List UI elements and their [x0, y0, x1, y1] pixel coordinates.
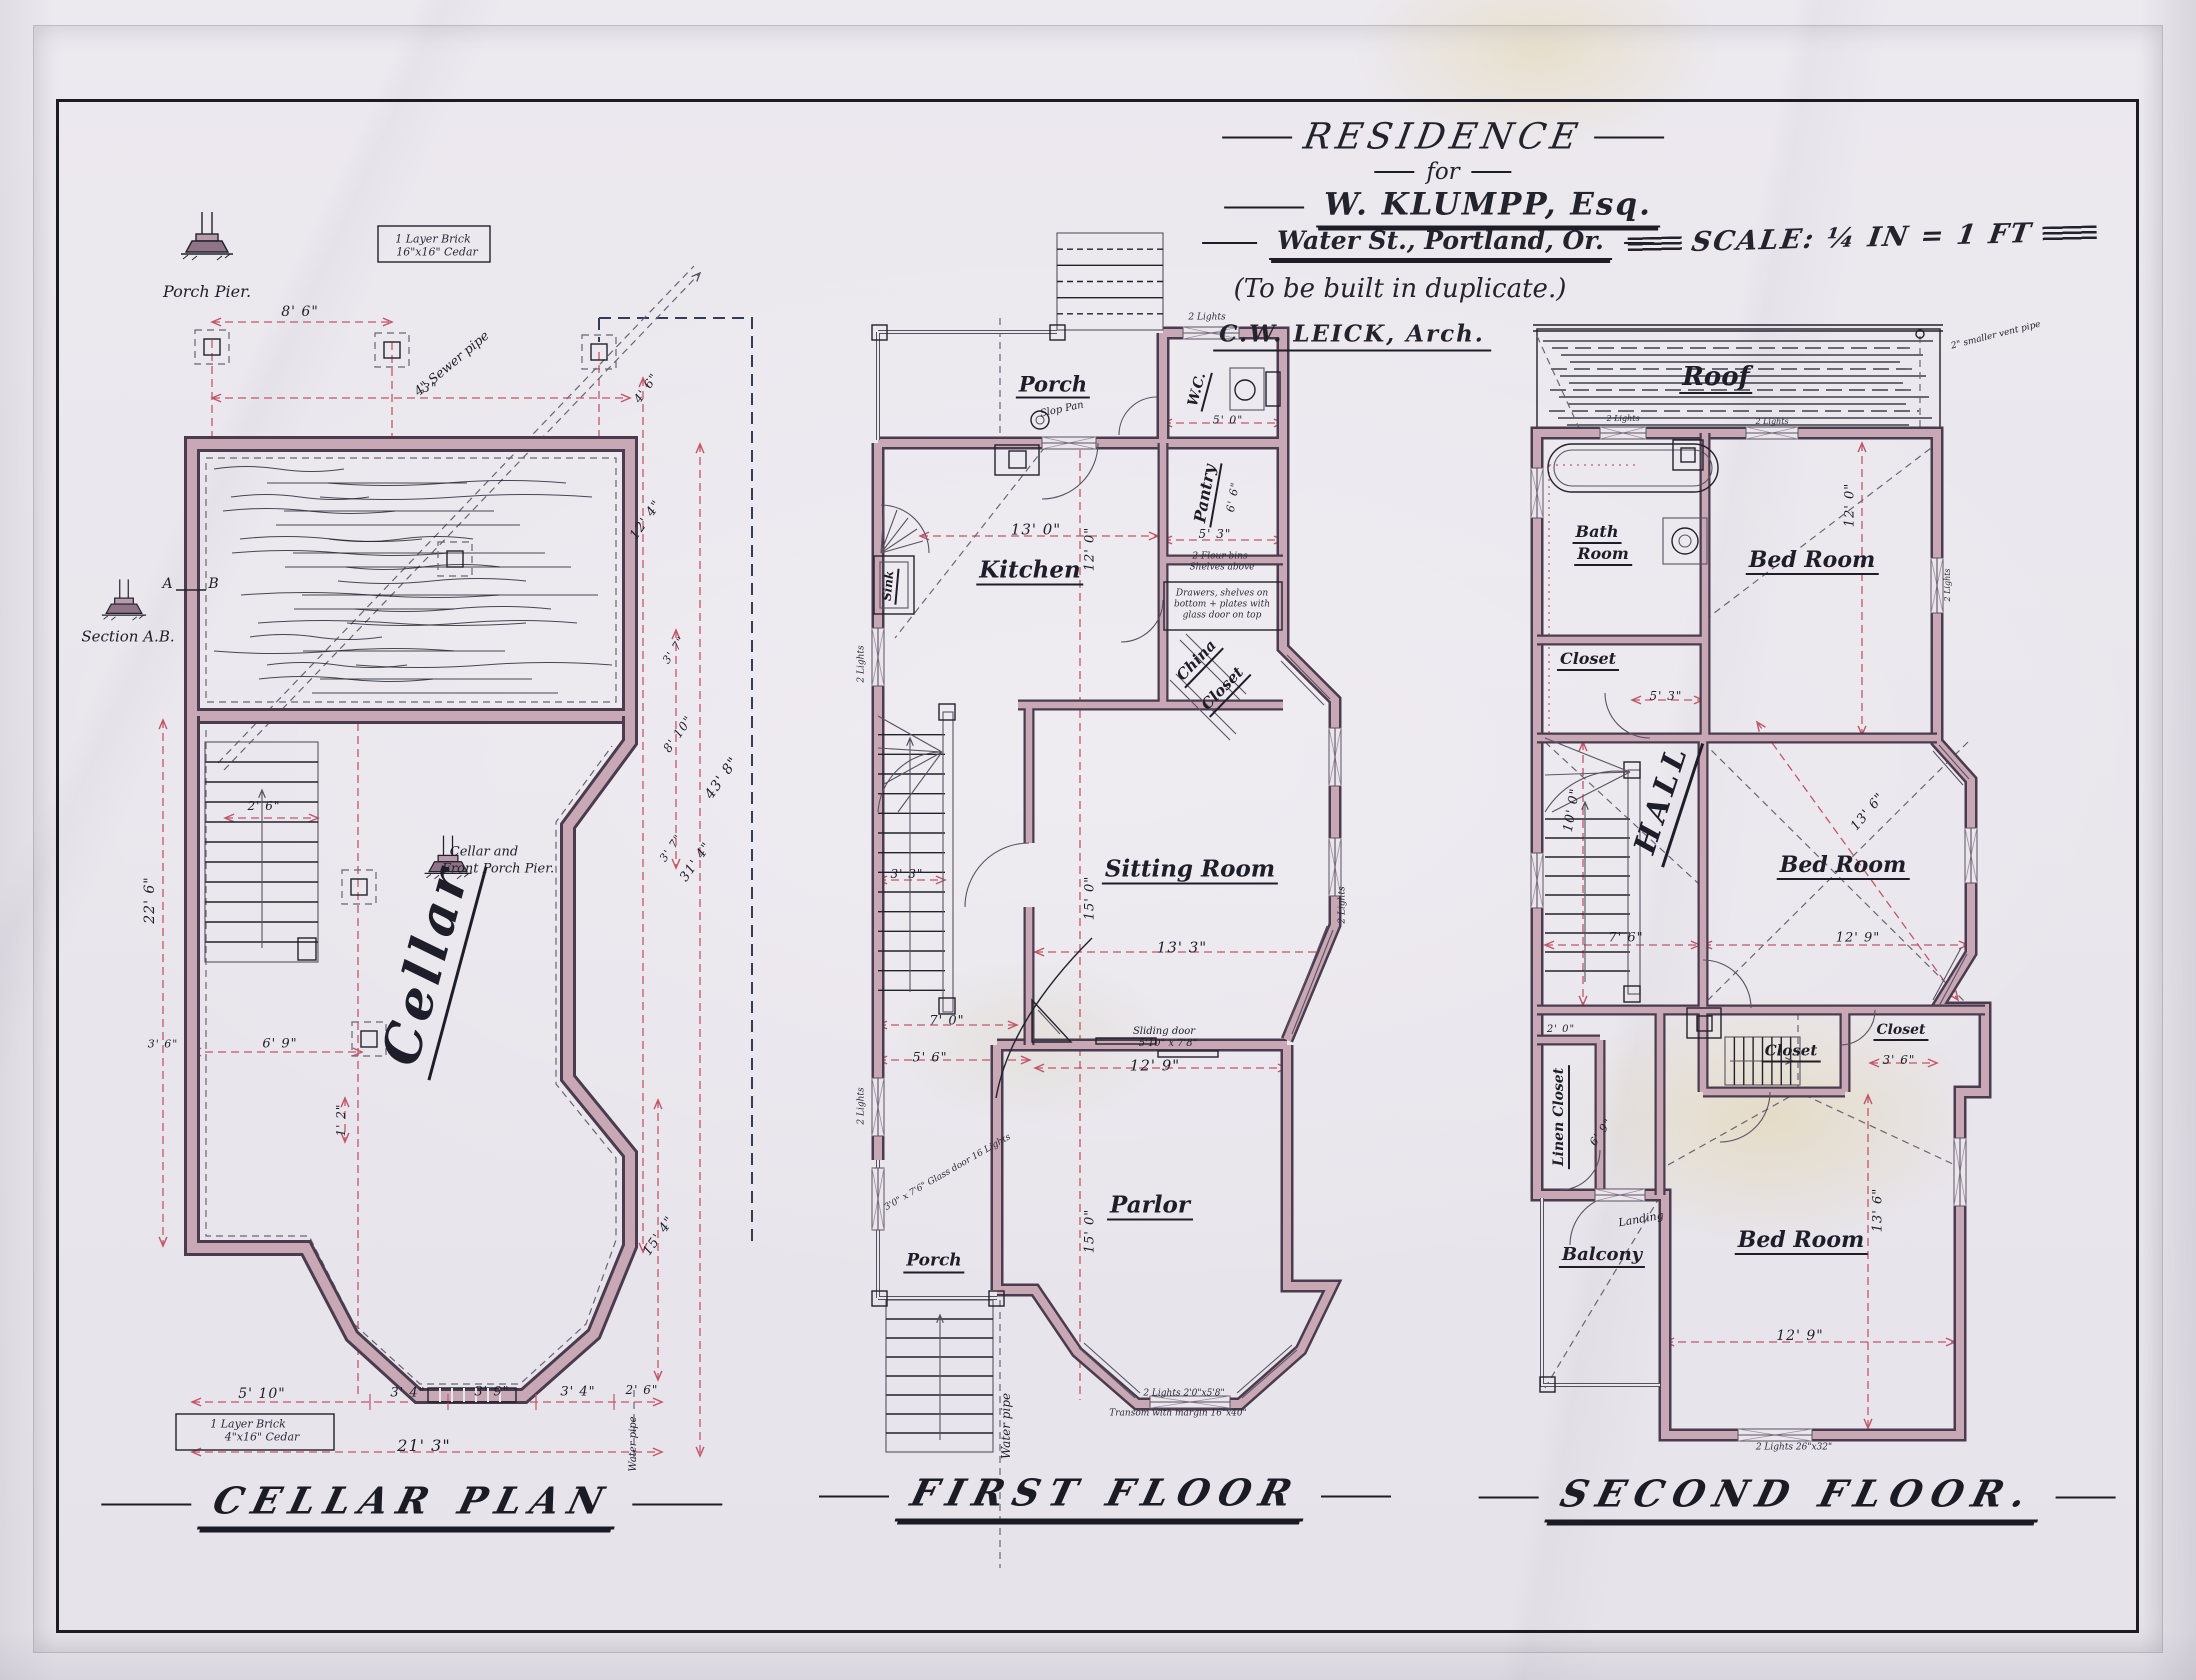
- water-pipe-note: Water pipe: [1000, 1393, 1012, 1459]
- client-line: W. KLUMPP, Esq.: [1212, 187, 1660, 228]
- label-second-27: 12' 9": [1776, 1329, 1823, 1343]
- bath-room-label: Bath: [1573, 524, 1622, 544]
- bedroom-2-label: Bed Room: [1777, 854, 1910, 880]
- label-first-11: bottom + plates with: [1174, 601, 1270, 610]
- label-second-10: 5' 3": [1650, 690, 1683, 702]
- label-first-6: 6' 6": [1225, 481, 1241, 513]
- label-first-25: 5' 6": [912, 1052, 947, 1065]
- wc-label: W.C.: [1185, 368, 1213, 411]
- rule: [633, 1503, 723, 1505]
- label-first-4: 5' 0": [1213, 415, 1244, 426]
- label-first-2: Slop Pan: [1039, 400, 1084, 419]
- label-second-5: Room: [1574, 546, 1632, 566]
- first-floor-title-text: FIRST FLOOR: [895, 1471, 1316, 1522]
- architect-name: C.W. LEICK, Arch.: [1213, 321, 1491, 352]
- cellar-room-label: Cellar: [372, 851, 487, 1080]
- label-first-21: 15' 0": [1084, 876, 1097, 921]
- label-cellar-29: 3' 7": [658, 832, 685, 863]
- for-text: for: [1426, 159, 1459, 185]
- label-first-36: Transom with margin 16"x40": [1109, 1410, 1247, 1419]
- label-first-33: 3'0" x 7'6" Glass door 16 Lights: [883, 1133, 1012, 1213]
- label-cellar-30: 43' 8": [703, 755, 742, 802]
- triple-rule: [2042, 225, 2096, 240]
- label-cellar-20: 3' 4": [560, 1386, 595, 1399]
- label-second-18: Closet: [1873, 1023, 1928, 1041]
- parlor-label: Parlor: [1107, 1194, 1193, 1221]
- cellar-plan-title-text: CELLAR PLAN: [197, 1479, 627, 1530]
- label-cellar-17: 5' 10": [238, 1387, 285, 1401]
- label-first-22: 13' 3": [1157, 941, 1207, 956]
- label-first-31: 15' 0": [1084, 1209, 1097, 1254]
- architect-line: C.W. LEICK, Arch.: [1213, 321, 1491, 352]
- label-cellar-23: 1 Layer Brick: [210, 1419, 286, 1430]
- sitting-room-label: Sitting Room: [1102, 858, 1278, 885]
- label-first-24: 7' 0": [929, 1015, 964, 1028]
- rule: [2055, 1496, 2115, 1498]
- label-first-12: glass door on top: [1183, 612, 1262, 621]
- first-floor-title: FIRST FLOOR: [807, 1471, 1403, 1522]
- label-first-18: Closet: [1197, 662, 1251, 717]
- label-first-9: Shelves above: [1189, 564, 1254, 573]
- label-cellar-16: 1' 2": [335, 1104, 347, 1137]
- label-first-23: 3' 3": [891, 868, 924, 880]
- label-cellar-31: 31' 4": [678, 840, 714, 884]
- kitchen-label: Kitchen: [976, 559, 1083, 586]
- label-second-1: 2" smaller vent pipe: [1950, 321, 2041, 352]
- rule: [1321, 1495, 1391, 1497]
- label-cellar-33: Water pipe: [629, 1416, 639, 1471]
- label-first-35: 2 Lights 2'0"x5'8": [1143, 1390, 1224, 1399]
- label-cellar-1: 8' 6": [281, 305, 319, 319]
- rule: [1472, 171, 1512, 173]
- label-first-8: 2 Flour bins: [1192, 553, 1247, 562]
- label-second-12: 10' 0": [1562, 787, 1583, 833]
- sheet-title: RESIDENCE: [1210, 117, 1676, 158]
- address-line: Water St., Portland, Or.: [1190, 226, 1666, 260]
- label-cellar-5: 16"x16" Cedar: [396, 247, 478, 258]
- label-cellar-18: 3' 4": [390, 1387, 425, 1400]
- label-second-26: 13' 6": [1872, 1188, 1885, 1233]
- label-second-9: Closet: [1557, 651, 1619, 671]
- label-cellar-19: 3' 9": [474, 1386, 509, 1399]
- label-cellar-32: 15' 4": [641, 1214, 677, 1258]
- label-second-3: 2 Lights: [1755, 418, 1788, 426]
- label-second-22: 6' 9": [1588, 1116, 1615, 1147]
- second-floor-title: SECOND FLOOR.: [1467, 1472, 2128, 1523]
- label-first-32: Porch: [903, 1253, 964, 1274]
- title-for-line: for: [1362, 159, 1523, 185]
- rule: [1202, 242, 1257, 244]
- label-first-27: 5'10" x 7'8": [1139, 1039, 1198, 1049]
- label-second-2: 2 Lights: [1606, 415, 1639, 423]
- label-first-10: Drawers, shelves on: [1176, 590, 1268, 599]
- label-first-19: 2 Lights: [858, 645, 867, 682]
- label-second-17: Closet: [1762, 1044, 1821, 1063]
- rule: [1222, 136, 1292, 138]
- sheet-title-text: RESIDENCE: [1301, 117, 1586, 158]
- pantry-label: Pantry: [1192, 460, 1223, 527]
- label-cellar-21: 2' 6": [626, 1384, 659, 1396]
- cellar-plan-title: CELLAR PLAN: [89, 1479, 734, 1530]
- label-first-34: 2 Lights: [858, 1087, 867, 1124]
- hall-label: HALL: [1628, 732, 1704, 867]
- label-cellar-4: 1 Layer Brick: [395, 234, 471, 245]
- label-second-16: 12' 9": [1836, 932, 1881, 945]
- label-cellar-22: 21' 3": [397, 1438, 450, 1454]
- label-cellar-7: B: [208, 577, 219, 591]
- label-cellar-24: 4"x16" Cedar: [225, 1432, 300, 1443]
- label-first-26: Sliding door: [1133, 1027, 1195, 1037]
- label-cellar-14: 3' 6": [148, 1039, 179, 1050]
- label-first-28: 12' 9": [1130, 1059, 1180, 1074]
- label-cellar-27: 3' 7": [661, 634, 688, 665]
- label-second-21: 2' 0": [1547, 1025, 1575, 1035]
- label-cellar-26: 12' 4": [628, 498, 664, 542]
- label-cellar-15: 6' 9": [262, 1038, 297, 1051]
- sewer-pipe-note: 4" Sewer pipe: [412, 329, 491, 399]
- roof-label: Roof: [1679, 364, 1752, 394]
- label-cellar-13: 22' 6": [143, 876, 157, 923]
- bedroom-1-label: Bed Room: [1746, 549, 1879, 575]
- label-second-28: 2 Lights 26"x32": [1756, 1444, 1832, 1453]
- balcony-label: Balcony: [1559, 1246, 1645, 1268]
- label-second-15: 13' 6": [1849, 791, 1888, 833]
- label-first-14: 13' 0": [1011, 523, 1061, 538]
- rule: [819, 1495, 889, 1497]
- label-first-7: 5' 3": [1199, 528, 1232, 540]
- label-second-7: 12' 0": [1844, 483, 1857, 528]
- porch-pier-caption: Porch Pier.: [163, 284, 251, 300]
- label-first-15: 12' 0": [1084, 527, 1097, 572]
- linen-closet-label: Linen Closet: [1552, 1065, 1570, 1169]
- label-cellar-10: Cellar and: [450, 846, 519, 859]
- duplicate-note: (To be built in duplicate.): [1234, 274, 1567, 304]
- label-cellar-25: 4' 6": [632, 371, 661, 405]
- second-floor-title-text: SECOND FLOOR.: [1544, 1472, 2049, 1523]
- triple-rule: [1628, 236, 1682, 251]
- label-cellar-9: 2' 6": [248, 800, 281, 812]
- drawing-sheet: .ink{stroke:#22222c;fill:none;stroke-wid…: [0, 0, 2196, 1680]
- label-second-23: Landing: [1618, 1210, 1665, 1229]
- bedroom-3-label: Bed Room: [1735, 1229, 1868, 1255]
- client-name: W. KLUMPP, Esq.: [1316, 187, 1660, 228]
- label-second-13: 7' 6": [1608, 932, 1643, 945]
- label-first-29: 2 Lights: [1339, 886, 1348, 923]
- label-second-19: 3' 6": [1883, 1054, 1916, 1066]
- label-second-8: 2 Lights: [1944, 568, 1952, 601]
- section-ab-caption: Section A.B.: [81, 630, 174, 645]
- porch-label: Porch: [1016, 374, 1090, 399]
- rule: [1374, 171, 1414, 173]
- rule: [1594, 136, 1664, 138]
- rule: [101, 1503, 191, 1505]
- duplicate-note-text: (To be built in duplicate.): [1234, 274, 1567, 304]
- rule: [1224, 206, 1304, 208]
- rule: [1479, 1496, 1539, 1498]
- address-text: Water St., Portland, Or.: [1269, 226, 1612, 260]
- label-cellar-28: 8' 10": [661, 714, 695, 755]
- label-first-16: Sink: [880, 567, 899, 605]
- label-cellar-6: A: [162, 577, 173, 591]
